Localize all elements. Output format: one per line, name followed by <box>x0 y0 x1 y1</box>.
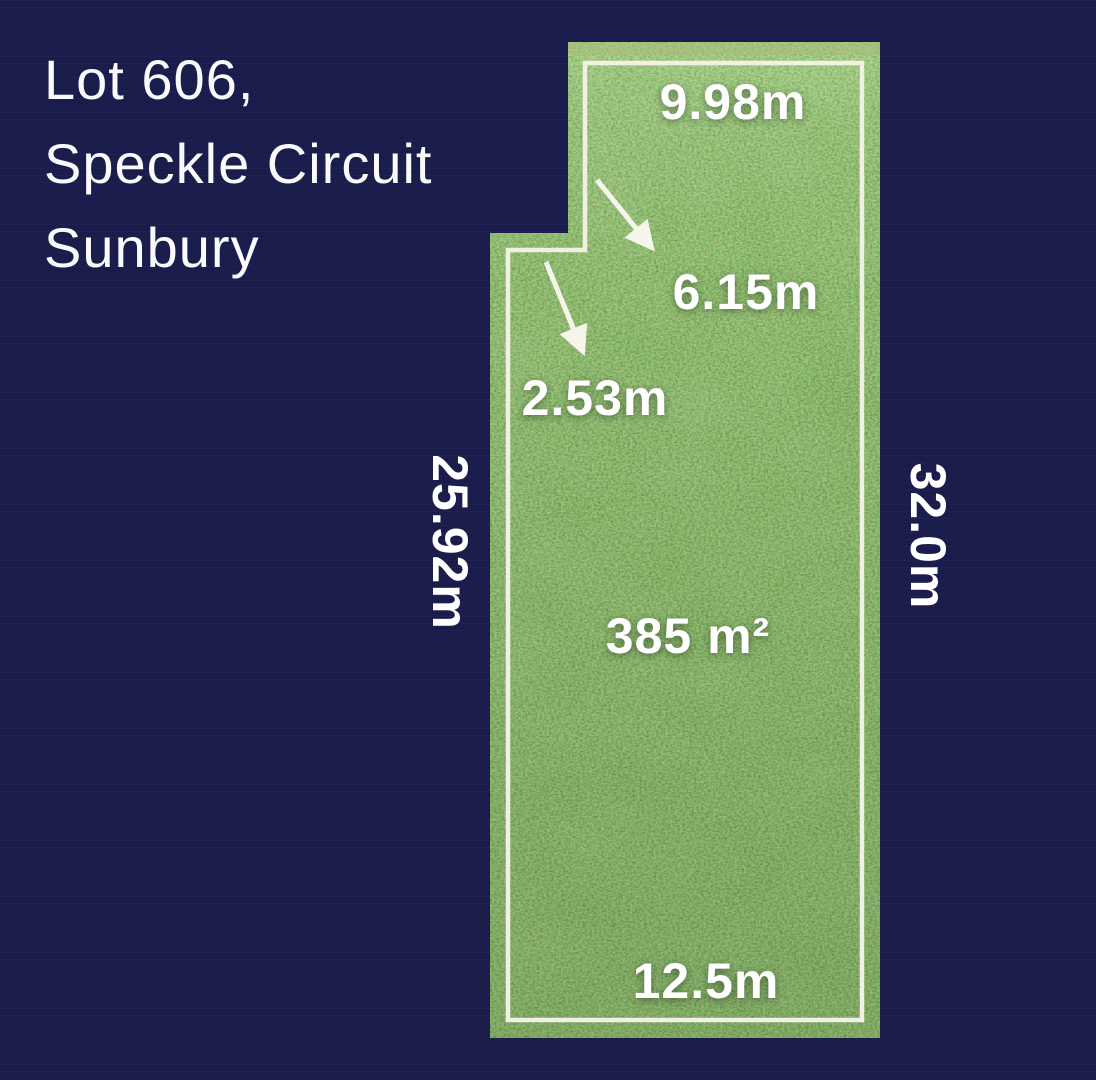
title-line-suburb: Sunbury <box>44 206 432 290</box>
title-line-street: Speckle Circuit <box>44 122 432 206</box>
dimension-label-left-side: 25.92m <box>421 454 479 630</box>
dimension-label-right-side: 32.0m <box>899 463 957 610</box>
dimension-label-upper-left-side: 6.15m <box>673 263 820 321</box>
lot-grass-shape <box>490 42 880 1038</box>
lot-area-label: 385 m² <box>606 607 770 665</box>
title-line-lot-number: Lot 606, <box>44 38 432 122</box>
grass-texture <box>490 42 880 1038</box>
dimension-label-top: 9.98m <box>660 73 807 131</box>
dimension-label-notch-step: 2.53m <box>522 369 669 427</box>
title-block: Lot 606, Speckle Circuit Sunbury <box>44 38 432 290</box>
dimension-label-bottom: 12.5m <box>633 952 780 1010</box>
lot-diagram-canvas: Lot 606, Speckle Circuit Sunbury <box>0 0 1096 1080</box>
